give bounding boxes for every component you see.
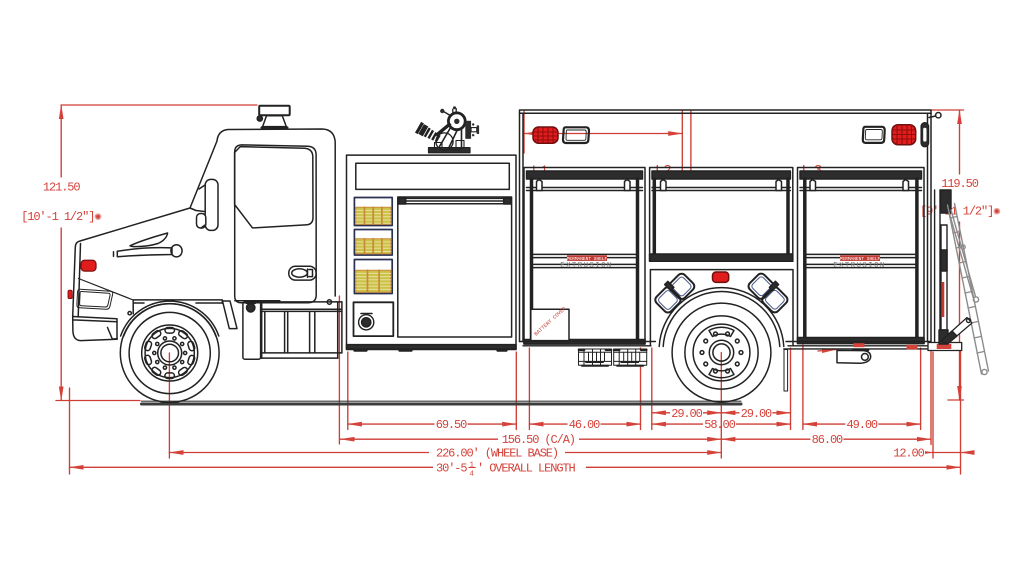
svg-text:29.00: 29.00 (741, 407, 772, 421)
svg-text:PERMANENT SHELF: PERMANENT SHELF (840, 256, 881, 262)
svg-text:121.50: 121.50 (43, 181, 81, 195)
svg-text:' OVERALL LENGTH: ' OVERALL LENGTH (477, 461, 576, 475)
svg-text:69.50: 69.50 (436, 418, 467, 432)
svg-text:86.00: 86.00 (812, 433, 843, 447)
svg-text:226.00' (WHEEL BASE): 226.00' (WHEEL BASE) (436, 447, 558, 461)
svg-text:119.50: 119.50 (941, 177, 979, 191)
svg-text:EXTRUSION: EXTRUSION (833, 262, 886, 270)
svg-text:29.00: 29.00 (671, 407, 702, 421)
svg-text:PERMANENT SHELF: PERMANENT SHELF (567, 256, 608, 262)
svg-text:EXTRUSION: EXTRUSION (560, 262, 613, 270)
svg-text:[10'-1 1/2"]✺: [10'-1 1/2"]✺ (21, 210, 101, 224)
svg-text:30'-5: 30'-5 (436, 461, 467, 475)
svg-text:49.00: 49.00 (847, 418, 878, 432)
svg-text:156.50 (C/A): 156.50 (C/A) (502, 433, 575, 447)
svg-text:[9'-11 1/2"]✺: [9'-11 1/2"]✺ (920, 204, 1000, 218)
svg-text:58.00: 58.00 (704, 418, 735, 432)
svg-text:12.00: 12.00 (893, 447, 924, 461)
svg-text:46.00: 46.00 (569, 418, 600, 432)
